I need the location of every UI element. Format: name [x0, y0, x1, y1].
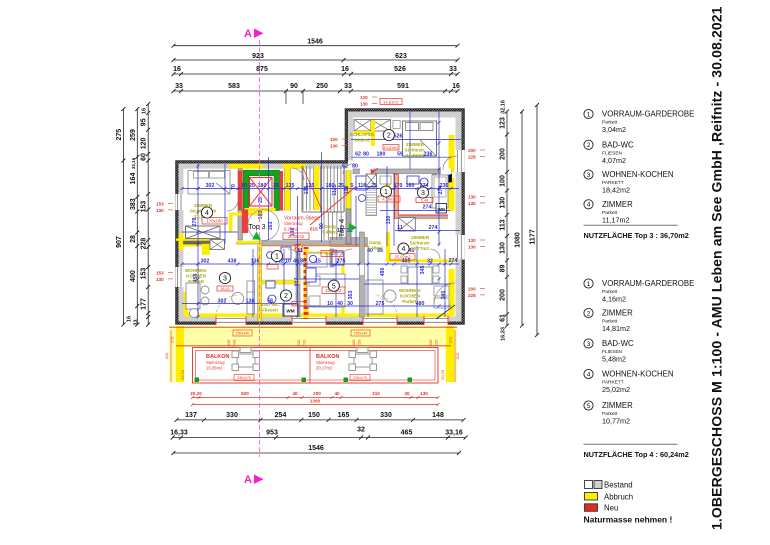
svg-text:345: 345: [420, 266, 426, 275]
svg-text:3: 3: [421, 190, 425, 197]
svg-text:526: 526: [394, 134, 403, 140]
svg-text:130: 130: [156, 208, 164, 213]
svg-text:274: 274: [423, 205, 432, 211]
svg-text:1.OBERGESCHOSS M 1:100 - AMU L: 1.OBERGESCHOSS M 1:100 - AMU Leben am Se…: [709, 6, 725, 530]
svg-text:200: 200: [468, 287, 476, 292]
svg-text:BAD-WC: BAD-WC: [602, 339, 634, 348]
svg-text:32: 32: [357, 427, 365, 434]
svg-text:137: 137: [185, 412, 197, 419]
svg-text:200: 200: [468, 148, 476, 153]
svg-text:220: 220: [434, 339, 439, 346]
svg-text:526: 526: [394, 66, 406, 73]
svg-text:320: 320: [330, 137, 338, 142]
svg-text:1: 1: [587, 111, 591, 118]
svg-text:33: 33: [344, 83, 352, 90]
svg-text:130: 130: [386, 216, 392, 225]
svg-text:5,48m2: 5,48m2: [322, 229, 338, 234]
svg-text:ZIMMER: ZIMMER: [602, 200, 633, 209]
svg-text:Naturmasse nehmen !: Naturmasse nehmen !: [584, 515, 673, 525]
svg-text:15: 15: [315, 259, 321, 265]
svg-text:307: 307: [295, 278, 301, 287]
svg-text:ZIMMER: ZIMMER: [602, 309, 633, 318]
svg-text:120: 120: [141, 137, 148, 149]
svg-text:274: 274: [429, 225, 438, 231]
svg-text:16: 16: [142, 108, 148, 114]
svg-text:WOHNEN-KOCHEN: WOHNEN-KOCHEN: [602, 370, 673, 379]
svg-text:25,02m2: 25,02m2: [602, 385, 630, 394]
svg-text:40: 40: [337, 301, 343, 307]
svg-text:Steinzeug: Steinzeug: [206, 360, 225, 365]
svg-text:32: 32: [427, 259, 433, 265]
svg-text:Gang: Gang: [324, 224, 336, 229]
svg-text:615: 615: [310, 227, 318, 232]
svg-text:270: 270: [448, 336, 453, 343]
svg-text:20: 20: [404, 391, 410, 396]
svg-text:345: 345: [441, 291, 447, 300]
svg-text:330: 330: [226, 412, 238, 419]
svg-text:Neu: Neu: [604, 504, 618, 513]
svg-text:4,16m2: 4,16m2: [602, 295, 626, 304]
svg-text:275: 275: [337, 259, 346, 265]
svg-text:11,17m2: 11,17m2: [602, 215, 629, 224]
svg-text:907: 907: [116, 236, 123, 248]
svg-text:275: 275: [376, 301, 385, 307]
svg-text:16: 16: [341, 66, 349, 73]
svg-text:20,20: 20,20: [180, 369, 185, 380]
svg-text:Sichtestr.: Sichtestr.: [410, 240, 431, 245]
svg-text:32,16: 32,16: [501, 100, 507, 114]
svg-text:4,07m2: 4,07m2: [602, 156, 626, 165]
svg-text:130: 130: [500, 242, 507, 254]
svg-text:16: 16: [127, 316, 133, 322]
svg-text:330: 330: [226, 339, 231, 346]
svg-text:953: 953: [266, 429, 278, 436]
svg-text:220: 220: [302, 339, 307, 346]
svg-text:163: 163: [268, 222, 274, 231]
svg-text:923: 923: [252, 53, 264, 60]
svg-text:16,05m2: 16,05m2: [206, 366, 223, 371]
svg-text:302: 302: [218, 299, 227, 305]
svg-text:25: 25: [371, 183, 377, 189]
svg-text:228: 228: [468, 293, 476, 298]
svg-text:KOCHEN: KOCHEN: [400, 293, 421, 298]
svg-text:123: 123: [500, 117, 507, 129]
svg-text:BAD-WC: BAD-WC: [602, 140, 634, 149]
svg-text:NUTZFLÄCHE Top 3 : 36,70m2: NUTZFLÄCHE Top 3 : 36,70m2: [584, 231, 689, 240]
svg-text:11: 11: [397, 225, 403, 231]
svg-text:2: 2: [284, 293, 288, 300]
svg-text:10: 10: [285, 259, 291, 265]
svg-text:302: 302: [201, 259, 210, 265]
svg-text:20,20: 20,20: [440, 369, 445, 380]
svg-text:33: 33: [175, 83, 183, 90]
svg-text:153: 153: [141, 268, 148, 280]
svg-text:220: 220: [232, 339, 237, 346]
svg-text:5,48m2: 5,48m2: [602, 355, 626, 364]
svg-text:135: 135: [304, 186, 310, 195]
svg-text:16: 16: [452, 83, 460, 90]
svg-text:5: 5: [351, 183, 354, 189]
svg-text:130: 130: [468, 201, 476, 206]
svg-text:NUTZFLÄCHE Top 4 : 60,24m2: NUTZFLÄCHE Top 4 : 60,24m2: [584, 450, 689, 459]
svg-text:WOHNEN-KOCHEN: WOHNEN-KOCHEN: [602, 170, 673, 179]
svg-text:Sichtestr.: Sichtestr.: [405, 147, 426, 152]
svg-text:33,16: 33,16: [445, 429, 463, 436]
svg-text:200: 200: [313, 391, 321, 396]
svg-text:1125: 1125: [332, 184, 338, 195]
svg-text:ZIMMER: ZIMMER: [411, 235, 430, 240]
svg-text:20,20: 20,20: [190, 391, 202, 396]
svg-text:113: 113: [500, 219, 507, 230]
svg-text:383: 383: [130, 198, 137, 210]
svg-text:150x140: 150x140: [354, 332, 368, 336]
svg-text:1080: 1080: [515, 232, 522, 248]
svg-text:60: 60: [141, 153, 148, 161]
svg-text:2: 2: [587, 310, 591, 317]
svg-text:10: 10: [241, 183, 247, 189]
svg-text:30: 30: [300, 259, 306, 265]
svg-text:130: 130: [468, 195, 476, 200]
svg-text:254: 254: [275, 412, 287, 419]
svg-text:3,04m2: 3,04m2: [602, 125, 626, 134]
svg-text:40: 40: [334, 391, 340, 396]
svg-text:164: 164: [130, 173, 137, 185]
svg-text:236: 236: [424, 152, 433, 158]
svg-text:330: 330: [296, 339, 301, 346]
svg-text:100: 100: [500, 175, 507, 187]
svg-text:180: 180: [377, 152, 386, 158]
svg-text:177: 177: [141, 298, 148, 310]
svg-text:30: 30: [347, 301, 353, 307]
svg-text:10,77m2: 10,77m2: [602, 417, 630, 426]
svg-text:353: 353: [348, 291, 354, 300]
svg-text:10: 10: [327, 301, 333, 307]
svg-text:28: 28: [130, 235, 137, 243]
svg-text:170x180: 170x180: [206, 219, 223, 224]
svg-text:1300: 1300: [310, 399, 321, 404]
svg-text:310: 310: [455, 352, 460, 359]
svg-text:80: 80: [363, 152, 369, 158]
svg-text:5: 5: [587, 403, 591, 410]
svg-text:330: 330: [380, 412, 392, 419]
svg-text:274: 274: [438, 186, 444, 195]
svg-text:153: 153: [141, 201, 148, 213]
svg-text:465: 465: [401, 429, 413, 436]
svg-text:148: 148: [432, 412, 444, 419]
svg-text:62: 62: [355, 152, 361, 158]
svg-text:1: 1: [384, 189, 388, 196]
svg-text:KOCHEN: KOCHEN: [186, 273, 207, 278]
svg-text:14,81m2: 14,81m2: [602, 324, 630, 333]
svg-text:14,8m2: 14,8m2: [354, 137, 370, 142]
svg-text:62: 62: [342, 164, 348, 170]
svg-text:200: 200: [500, 148, 507, 160]
svg-text:Gang: Gang: [369, 240, 381, 245]
svg-text:330: 330: [351, 339, 356, 346]
svg-text:130: 130: [468, 244, 476, 249]
svg-text:275: 275: [116, 129, 123, 141]
svg-text:Fliesen: Fliesen: [262, 307, 278, 312]
svg-text:WM: WM: [286, 309, 294, 314]
svg-text:438: 438: [228, 259, 237, 265]
svg-text:259: 259: [130, 129, 137, 141]
svg-text:278: 278: [192, 218, 198, 227]
svg-text:1: 1: [275, 254, 279, 261]
svg-text:14,81m2: 14,81m2: [383, 99, 399, 104]
svg-text:310: 310: [372, 391, 380, 396]
svg-text:136: 136: [246, 299, 255, 305]
svg-text:103: 103: [258, 211, 264, 220]
svg-text:330: 330: [428, 339, 433, 346]
svg-text:Steinzeug: Steinzeug: [284, 221, 303, 226]
svg-text:135: 135: [286, 183, 295, 189]
svg-text:118: 118: [344, 186, 350, 194]
svg-text:18,42: 18,42: [220, 287, 230, 291]
svg-text:150: 150: [308, 412, 320, 419]
svg-text:20,66m2: 20,66m2: [288, 234, 305, 239]
svg-text:16: 16: [173, 66, 181, 73]
svg-text:875: 875: [256, 66, 268, 73]
svg-text:302: 302: [206, 183, 215, 189]
svg-text:40: 40: [292, 391, 298, 396]
svg-text:4: 4: [587, 371, 591, 378]
svg-text:160: 160: [406, 183, 415, 189]
svg-text:Abbruch: Abbruch: [604, 492, 633, 501]
svg-text:11: 11: [297, 248, 303, 254]
svg-text:165: 165: [338, 412, 350, 419]
svg-text:5,48m2: 5,48m2: [325, 251, 339, 256]
svg-text:270: 270: [170, 336, 175, 343]
svg-text:220: 220: [357, 339, 362, 346]
svg-text:61: 61: [500, 314, 507, 322]
svg-text:180: 180: [258, 183, 267, 189]
svg-text:WOHNEN-: WOHNEN-: [185, 268, 208, 273]
svg-text:3: 3: [587, 341, 591, 348]
svg-text:33: 33: [449, 66, 457, 73]
svg-text:Parkett: Parkett: [402, 299, 418, 304]
svg-text:130: 130: [156, 277, 164, 282]
svg-text:1546: 1546: [308, 445, 324, 452]
svg-text:130: 130: [360, 101, 368, 106]
svg-text:310: 310: [164, 352, 169, 359]
svg-text:40: 40: [293, 259, 299, 265]
svg-text:130: 130: [468, 238, 476, 243]
svg-text:228: 228: [468, 154, 476, 159]
svg-text:95: 95: [141, 118, 148, 126]
svg-text:90: 90: [290, 83, 298, 90]
svg-text:33,16: 33,16: [131, 157, 136, 169]
svg-text:14,81m2: 14,81m2: [406, 153, 425, 158]
svg-text:153: 153: [156, 271, 164, 276]
svg-text:3: 3: [223, 276, 227, 283]
svg-text:150x140: 150x140: [236, 332, 250, 336]
svg-text:920: 920: [241, 391, 249, 396]
svg-text:5,48: 5,48: [421, 199, 428, 203]
svg-text:3: 3: [587, 172, 591, 179]
svg-text:480: 480: [380, 268, 386, 277]
svg-text:16,33: 16,33: [501, 327, 507, 341]
svg-text:118: 118: [358, 183, 366, 189]
svg-text:1546: 1546: [307, 39, 323, 46]
svg-text:59: 59: [397, 152, 403, 158]
svg-text:25: 25: [273, 183, 279, 189]
svg-text:136: 136: [251, 259, 260, 265]
svg-text:25: 25: [258, 197, 264, 203]
svg-text:14,81m2: 14,81m2: [384, 146, 399, 150]
svg-text:VORRAUM-GARDEROBE: VORRAUM-GARDEROBE: [602, 110, 694, 119]
svg-text:25,02m2: 25,02m2: [394, 255, 411, 260]
svg-text:80: 80: [352, 164, 358, 170]
svg-text:130: 130: [500, 197, 507, 209]
svg-text:16,33: 16,33: [170, 429, 188, 436]
svg-text:230x170: 230x170: [353, 376, 367, 380]
svg-text:591: 591: [397, 83, 409, 90]
svg-text:Parkett: Parkett: [188, 279, 204, 284]
svg-text:18,42m2: 18,42m2: [602, 186, 630, 195]
svg-text:120: 120: [360, 95, 368, 100]
svg-text:274: 274: [449, 258, 458, 264]
svg-text:200: 200: [500, 289, 507, 301]
svg-text:Top 4: Top 4: [337, 219, 346, 237]
svg-text:10,77m2: 10,77m2: [411, 246, 430, 251]
svg-text:Top 3: Top 3: [248, 224, 265, 231]
svg-text:A: A: [244, 474, 252, 486]
svg-text:153: 153: [156, 202, 164, 207]
svg-text:5,48m2: 5,48m2: [367, 245, 383, 250]
svg-text:33: 33: [134, 319, 140, 325]
svg-text:4: 4: [205, 210, 209, 217]
svg-text:WOHNEN-: WOHNEN-: [399, 288, 422, 293]
svg-text:SCHLAFEN: SCHLAFEN: [349, 132, 375, 137]
svg-text:130: 130: [330, 143, 338, 148]
svg-text:2: 2: [587, 142, 591, 149]
svg-text:228: 228: [141, 238, 148, 250]
svg-text:VORRAUM-GARDEROBE: VORRAUM-GARDEROBE: [602, 279, 694, 288]
svg-text:4: 4: [402, 246, 406, 253]
svg-text:1: 1: [587, 281, 591, 288]
svg-text:Steinzeug: Steinzeug: [316, 360, 335, 365]
svg-text:400: 400: [130, 270, 137, 282]
svg-text:9,27m2: 9,27m2: [284, 227, 299, 232]
svg-text:ZIMMER: ZIMMER: [406, 142, 425, 147]
svg-text:ZIMMER: ZIMMER: [602, 401, 633, 410]
svg-text:623: 623: [395, 53, 407, 60]
svg-text:5: 5: [332, 283, 336, 290]
svg-text:Bestand: Bestand: [604, 481, 633, 490]
svg-text:4,16m2: 4,16m2: [382, 197, 396, 202]
svg-text:2: 2: [387, 133, 391, 140]
svg-text:BAD-WC: BAD-WC: [260, 302, 280, 307]
svg-text:250: 250: [316, 83, 328, 90]
svg-text:20,17m2: 20,17m2: [316, 366, 333, 371]
svg-text:A: A: [244, 28, 252, 40]
svg-text:70: 70: [231, 184, 237, 190]
svg-text:130: 130: [420, 391, 428, 396]
svg-text:583: 583: [228, 83, 240, 90]
svg-text:230x170: 230x170: [237, 376, 251, 380]
svg-text:170: 170: [394, 183, 403, 189]
svg-text:89: 89: [500, 265, 507, 273]
svg-text:25: 25: [249, 183, 255, 189]
svg-text:1177: 1177: [530, 229, 537, 244]
svg-text:4: 4: [587, 202, 591, 209]
